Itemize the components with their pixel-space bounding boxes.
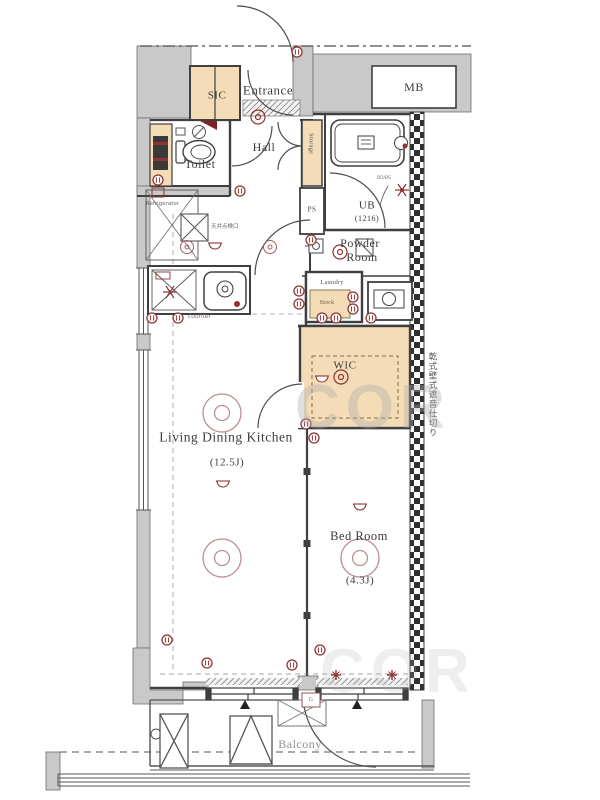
storage-label: Storage: [307, 133, 314, 154]
refrigerator-note: Refrigerator: [146, 201, 179, 207]
building-bottom-edge: [58, 774, 470, 786]
section-marker-left: [240, 700, 250, 709]
bath-note-leader: [380, 186, 388, 206]
wic-door: [258, 384, 302, 428]
powder-room-label-1: Powder: [340, 237, 380, 249]
shower-valve-icon: [395, 184, 409, 196]
wall-bottom-left: [133, 648, 183, 704]
toilet-accessories: [176, 126, 206, 139]
ldk-size-label: (12.5J): [210, 458, 244, 469]
toilet-cabinet: [153, 136, 168, 170]
hall-label: Hall: [253, 141, 276, 153]
ac-unit-center: [230, 716, 272, 764]
ceiling-hatch-box: [181, 214, 208, 241]
section-marker-right: [352, 700, 362, 709]
laundry-label: Laundry: [320, 280, 343, 287]
entry-outer-door: [237, 6, 293, 62]
ub-label: UB: [359, 201, 375, 212]
storage-door-top: [278, 122, 302, 146]
wall-balcony-right: [422, 700, 434, 768]
storage-door-bottom: [278, 146, 302, 170]
ps-label: PS: [308, 207, 317, 214]
bedroom-label: Bed Room: [330, 530, 388, 543]
ac-unit-left: [160, 714, 188, 768]
laundry-stock-label: Stock: [320, 300, 335, 306]
counter-note: counter: [188, 313, 211, 320]
bath-dryer-note: BD/BS: [377, 176, 391, 181]
wall-toilet-bottom: [137, 186, 230, 196]
wic-label: WIC: [334, 361, 357, 372]
sic-label: SIC: [208, 91, 227, 102]
balcony-label: Balcony: [278, 738, 322, 750]
mb-label: MB: [404, 81, 424, 93]
floor-plan: Entrance SIC MB Toilet Hall Storage UB (…: [0, 0, 600, 800]
ldk-label: Living Dining Kitchen: [159, 430, 292, 444]
party-wall-checkered: [410, 112, 424, 690]
sink-icon: [204, 272, 246, 310]
partition-note-vertical: 乾式壁式遮音仕切り: [426, 352, 438, 438]
powder-room-label-2: Room: [346, 251, 377, 263]
ceiling-hatch-note: 天井点検口: [211, 222, 239, 230]
wall-top-left: [137, 46, 191, 118]
floor-plan-drawing: [0, 0, 600, 800]
entrance-label: Entrance: [243, 84, 293, 97]
bathtub: [331, 120, 408, 166]
bedroom-size-label: (4.3J): [346, 576, 374, 587]
toilet-label: Toilet: [185, 158, 216, 170]
gas-meter-label: G: [309, 697, 314, 703]
ub-size-label: (1216): [355, 215, 379, 223]
